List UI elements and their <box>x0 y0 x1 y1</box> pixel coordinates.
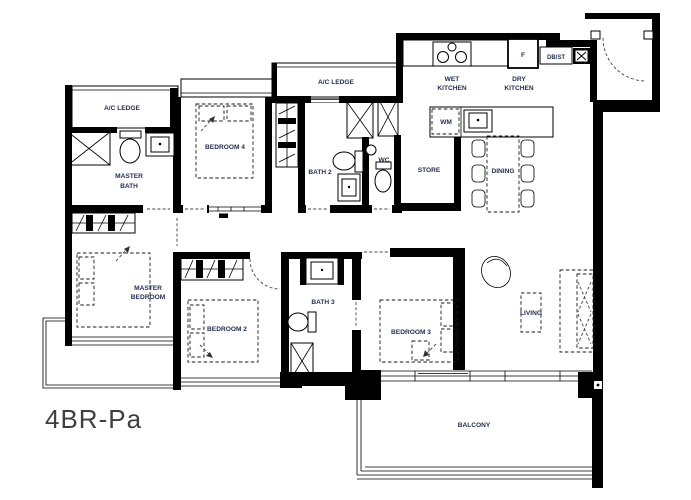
toilet-master-icon <box>120 131 141 163</box>
stove-icon <box>433 42 471 66</box>
master-bedroom-window <box>65 337 178 345</box>
washing-machine-icon: WM <box>432 109 459 134</box>
floor-plan-svg: A/C LEDGE A/C LEDGE MASTER BATH <box>0 0 691 500</box>
sink-island-icon <box>464 110 492 132</box>
wet-kitchen-label-2: KITCHEN <box>437 85 467 92</box>
living: LIVING <box>381 251 594 381</box>
wardrobe-master-icon <box>72 213 135 233</box>
balcony: BALCONY <box>357 400 603 479</box>
sink-wc-icon <box>366 145 376 155</box>
store-label: STORE <box>418 167 441 174</box>
master-bath: MASTER BATH <box>68 131 174 209</box>
shower-bath2-icon <box>347 102 373 138</box>
bedroom-2: BEDROOM 2 <box>181 258 280 386</box>
fridge-icon: F <box>508 39 538 68</box>
master-bath-label-2: BATH <box>120 183 138 190</box>
entry-door-arc <box>603 38 646 81</box>
bedroom-3: BEDROOM 3 <box>364 252 458 362</box>
dry-kitchen-label-1: DRY <box>512 76 526 83</box>
sink-master-icon <box>146 133 174 156</box>
toilet-bath2-icon <box>333 151 363 172</box>
bedroom-4-label: BEDROOM 4 <box>205 144 245 151</box>
ledge-above-bedroom4 <box>181 79 272 97</box>
wardrobe-bedroom2-icon <box>181 258 243 280</box>
master-bedroom: MASTER BEDROOM <box>43 213 178 388</box>
bedroom-2-window <box>181 378 280 386</box>
bedroom-2-label: BEDROOM 2 <box>207 326 247 333</box>
wet-kitchen-label-1: WET <box>445 76 460 83</box>
ac-ledge-left-label: A/C LEDGE <box>104 105 141 112</box>
bath-2-label: BATH 2 <box>308 169 332 176</box>
ac-ledge-mid: A/C LEDGE <box>272 63 397 98</box>
wc: WC <box>366 145 391 209</box>
walls <box>65 13 660 488</box>
db-st-box: DB/ST <box>540 47 572 64</box>
dining-label: DINING <box>491 168 514 175</box>
shower-wc-icon <box>378 98 398 136</box>
entry-foyer <box>591 31 653 81</box>
master-bath-label-1: MASTER <box>115 173 143 180</box>
bedroom-4: BEDROOM 4 <box>185 104 261 214</box>
floor-plan: A/C LEDGE A/C LEDGE MASTER BATH <box>0 0 691 500</box>
unit-type-label: 4BR-Pa <box>45 404 142 434</box>
planter-ledge <box>43 318 177 388</box>
wm-label: WM <box>440 119 452 126</box>
living-label: LIVING <box>520 310 542 317</box>
balcony-label: BALCONY <box>458 422 491 429</box>
living-window <box>381 371 592 381</box>
ac-ledge-mid-label: A/C LEDGE <box>318 79 355 86</box>
bedroom-2-door-arc <box>250 259 280 289</box>
armchair-icon <box>476 251 516 292</box>
bedroom-3-label: BEDROOM 3 <box>391 329 431 336</box>
sink-bath2-icon <box>338 174 360 201</box>
master-bedroom-label-1: MASTER <box>134 285 162 292</box>
wc-label: WC <box>379 157 390 164</box>
db-st-label: DB/ST <box>547 55 565 61</box>
island-counter: WM <box>430 107 553 137</box>
balcony-railing <box>357 400 603 479</box>
wardrobe-bedroom4-icon <box>276 103 298 167</box>
master-bedroom-label-2: BEDROOM <box>131 294 166 301</box>
toilet-bath3-icon <box>288 312 316 332</box>
sofa-icon <box>560 270 594 352</box>
wet-kitchen: WET KITCHEN <box>403 40 508 92</box>
bath-3: BATH 3 <box>288 257 356 379</box>
toilet-wc-icon <box>375 162 391 192</box>
fridge-label: F <box>521 52 525 59</box>
shaft-x-icon <box>573 48 590 64</box>
bath-2: BATH 2 <box>308 98 398 209</box>
sink-bath3-icon <box>306 258 338 284</box>
dry-kitchen-label-2: KITCHEN <box>504 85 534 92</box>
shower-master-icon <box>68 132 110 165</box>
dining: DINING <box>472 136 534 212</box>
ac-ledge-left: A/C LEDGE <box>72 86 178 128</box>
bed-4-icon <box>196 104 253 178</box>
bath-3-label: BATH 3 <box>311 299 335 306</box>
